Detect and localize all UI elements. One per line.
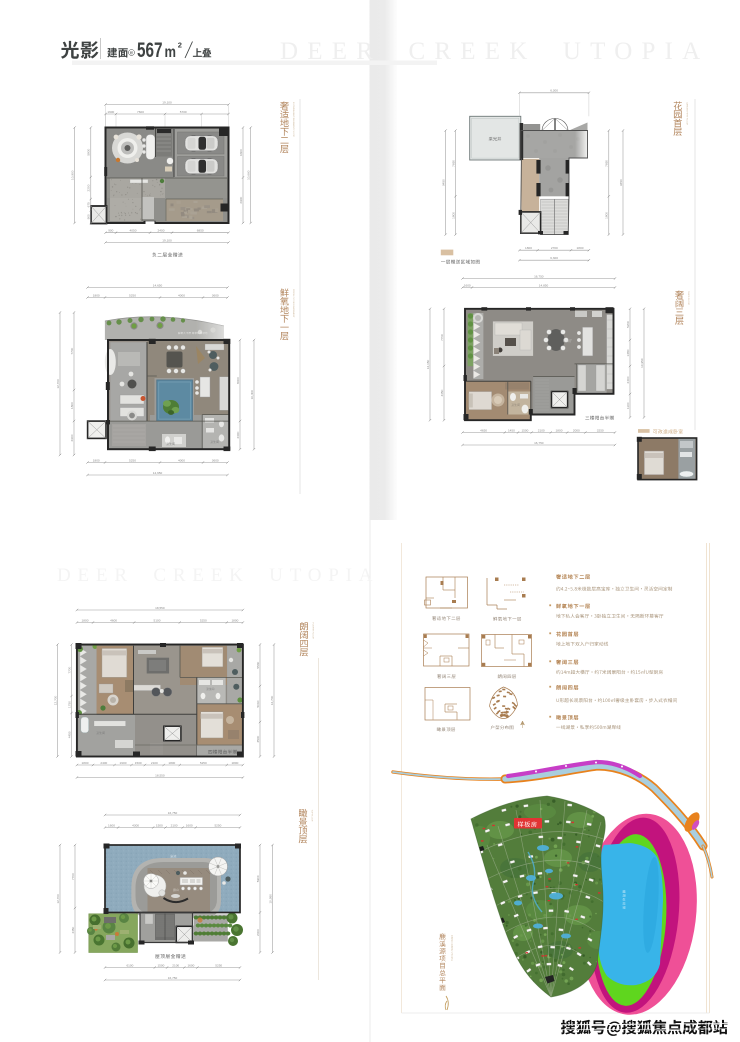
svg-text:1500: 1500 <box>135 761 142 765</box>
svg-text:1800: 1800 <box>168 761 175 765</box>
svg-text:1800: 1800 <box>93 293 100 297</box>
svg-text:THIRD FLOOR: THIRD FLOOR <box>687 291 689 306</box>
svg-text:2700: 2700 <box>551 246 558 250</box>
svg-text:DEER CREEK UTOPIA: DEER CREEK UTOPIA <box>450 935 453 961</box>
svg-text:4050: 4050 <box>130 229 137 233</box>
svg-text:19,100: 19,100 <box>162 100 172 104</box>
svg-text:5250: 5250 <box>129 458 136 462</box>
svg-text:7700: 7700 <box>440 334 444 341</box>
svg-text:2000: 2000 <box>573 428 580 432</box>
svg-text:3250: 3250 <box>597 428 604 432</box>
svg-text:18,550: 18,550 <box>155 773 165 777</box>
svg-text:1800: 1800 <box>525 246 532 250</box>
svg-text:1600: 1600 <box>107 110 114 114</box>
svg-text:14,650: 14,650 <box>153 283 163 287</box>
svg-text:4450: 4450 <box>440 389 444 396</box>
svg-text:10,950: 10,950 <box>268 894 272 904</box>
svg-text:6300: 6300 <box>239 149 243 156</box>
svg-text:2900: 2900 <box>70 434 74 441</box>
svg-text:12,700: 12,700 <box>56 894 60 904</box>
svg-text:2: 2 <box>178 41 182 50</box>
svg-text:14,650: 14,650 <box>153 471 163 475</box>
svg-text:5700: 5700 <box>180 110 187 114</box>
svg-text:1800: 1800 <box>231 761 238 765</box>
svg-text:4450: 4450 <box>67 731 71 738</box>
svg-text:5530: 5530 <box>256 661 260 668</box>
svg-text:10,950: 10,950 <box>640 358 644 368</box>
svg-text:FOURTH FLOOR: FOURTH FLOOR <box>312 623 314 640</box>
svg-text:19,100: 19,100 <box>162 238 172 242</box>
svg-text:2100: 2100 <box>172 963 179 967</box>
svg-text:1600: 1600 <box>108 823 115 827</box>
svg-text:1750: 1750 <box>67 701 71 708</box>
svg-text:10,300: 10,300 <box>250 390 254 400</box>
svg-text:DEER CREEK UTOPIA: DEER CREEK UTOPIA <box>57 565 379 586</box>
svg-text:16,750: 16,750 <box>534 441 544 445</box>
svg-text:5250: 5250 <box>200 761 207 765</box>
svg-text:1600: 1600 <box>464 283 471 287</box>
svg-text:EXTRAVAGANT BASEMENT FLOOR: EXTRAVAGANT BASEMENT FLOOR <box>292 102 295 137</box>
svg-text:2900: 2900 <box>239 196 243 203</box>
svg-text:5100: 5100 <box>154 618 161 622</box>
svg-text:6850: 6850 <box>197 229 204 233</box>
svg-text:1800: 1800 <box>93 458 100 462</box>
svg-text:8000: 8000 <box>236 377 240 384</box>
svg-text:7650: 7650 <box>605 160 609 167</box>
svg-text:1500: 1500 <box>156 823 163 827</box>
svg-text:2100: 2100 <box>171 823 178 827</box>
svg-text:9450: 9450 <box>619 179 623 186</box>
svg-text:12,700: 12,700 <box>270 695 274 705</box>
svg-text:4600: 4600 <box>110 618 117 622</box>
svg-text:6100: 6100 <box>126 963 133 967</box>
svg-text:1600: 1600 <box>186 823 193 827</box>
svg-text:1800: 1800 <box>231 618 238 622</box>
svg-text:900: 900 <box>87 214 91 219</box>
svg-text:2300: 2300 <box>236 431 240 438</box>
svg-text:GARDEN FIRST FLOOR: GARDEN FIRST FLOOR <box>685 102 688 126</box>
svg-text:5250: 5250 <box>200 618 207 622</box>
svg-text:1800: 1800 <box>70 402 74 409</box>
svg-text:7700: 7700 <box>67 666 71 673</box>
svg-text:1800: 1800 <box>82 761 89 765</box>
svg-text:7650: 7650 <box>451 160 455 167</box>
svg-text:5250: 5250 <box>215 963 222 967</box>
svg-text:16,750: 16,750 <box>168 976 178 980</box>
svg-text:4300: 4300 <box>132 823 139 827</box>
svg-text:5200: 5200 <box>626 321 630 328</box>
svg-text:1800: 1800 <box>577 246 584 250</box>
svg-text:567: 567 <box>137 39 163 62</box>
svg-text:5900: 5900 <box>256 875 260 882</box>
svg-text:4000: 4000 <box>178 293 185 297</box>
svg-text:10,660: 10,660 <box>247 170 251 180</box>
svg-text:5250: 5250 <box>214 823 221 827</box>
svg-text:3600: 3600 <box>212 293 219 297</box>
svg-text:675: 675 <box>87 202 91 207</box>
svg-text:1100: 1100 <box>626 402 630 409</box>
svg-text:9450: 9450 <box>441 179 445 186</box>
svg-text:4650: 4650 <box>480 428 487 432</box>
svg-text:1450: 1450 <box>508 428 515 432</box>
svg-text:4450: 4450 <box>71 926 75 933</box>
svg-text:1380: 1380 <box>626 349 630 356</box>
svg-text:2400: 2400 <box>100 761 107 765</box>
svg-text:2400: 2400 <box>158 229 165 233</box>
svg-text:10,900: 10,900 <box>70 170 74 180</box>
svg-text:4000: 4000 <box>178 458 185 462</box>
svg-text:5060: 5060 <box>256 700 260 707</box>
svg-text:1600: 1600 <box>187 963 194 967</box>
svg-text:12,700: 12,700 <box>53 695 57 705</box>
svg-text:3500: 3500 <box>256 735 260 742</box>
svg-text:2000: 2000 <box>256 929 260 936</box>
svg-text:FRESH OXYGEN BASEMENT: FRESH OXYGEN BASEMENT <box>292 289 295 318</box>
svg-text:18,550: 18,550 <box>155 606 165 610</box>
svg-text:7700: 7700 <box>71 873 75 880</box>
svg-text:900: 900 <box>108 229 113 233</box>
svg-text:12,700: 12,700 <box>56 379 60 389</box>
svg-text:1500: 1500 <box>157 963 164 967</box>
svg-text:16,750: 16,750 <box>534 274 544 278</box>
svg-text:1900: 1900 <box>120 761 127 765</box>
svg-text:1800: 1800 <box>82 618 89 622</box>
svg-text:7700: 7700 <box>70 347 74 354</box>
svg-text:1800: 1800 <box>605 212 609 219</box>
svg-text:12,150: 12,150 <box>426 359 430 369</box>
svg-text:2100: 2100 <box>538 428 545 432</box>
svg-text:7600: 7600 <box>137 110 144 114</box>
svg-text:2400: 2400 <box>626 376 630 383</box>
svg-text:2200: 2200 <box>87 184 91 191</box>
svg-text:1800: 1800 <box>556 428 563 432</box>
svg-text:16,750: 16,750 <box>168 811 178 815</box>
svg-text:6,300: 6,300 <box>550 256 558 260</box>
svg-text:m: m <box>165 44 177 61</box>
svg-text:14,850: 14,850 <box>539 283 549 287</box>
svg-text:1500: 1500 <box>521 428 528 432</box>
svg-text:2100: 2100 <box>151 761 158 765</box>
svg-text:6,300: 6,300 <box>550 89 558 93</box>
svg-text:1800: 1800 <box>451 212 455 219</box>
svg-text:5250: 5250 <box>129 293 136 297</box>
svg-text:3600: 3600 <box>212 458 219 462</box>
svg-text:5800: 5800 <box>87 148 91 155</box>
svg-text:TOP FLOOR: TOP FLOOR <box>311 810 313 822</box>
